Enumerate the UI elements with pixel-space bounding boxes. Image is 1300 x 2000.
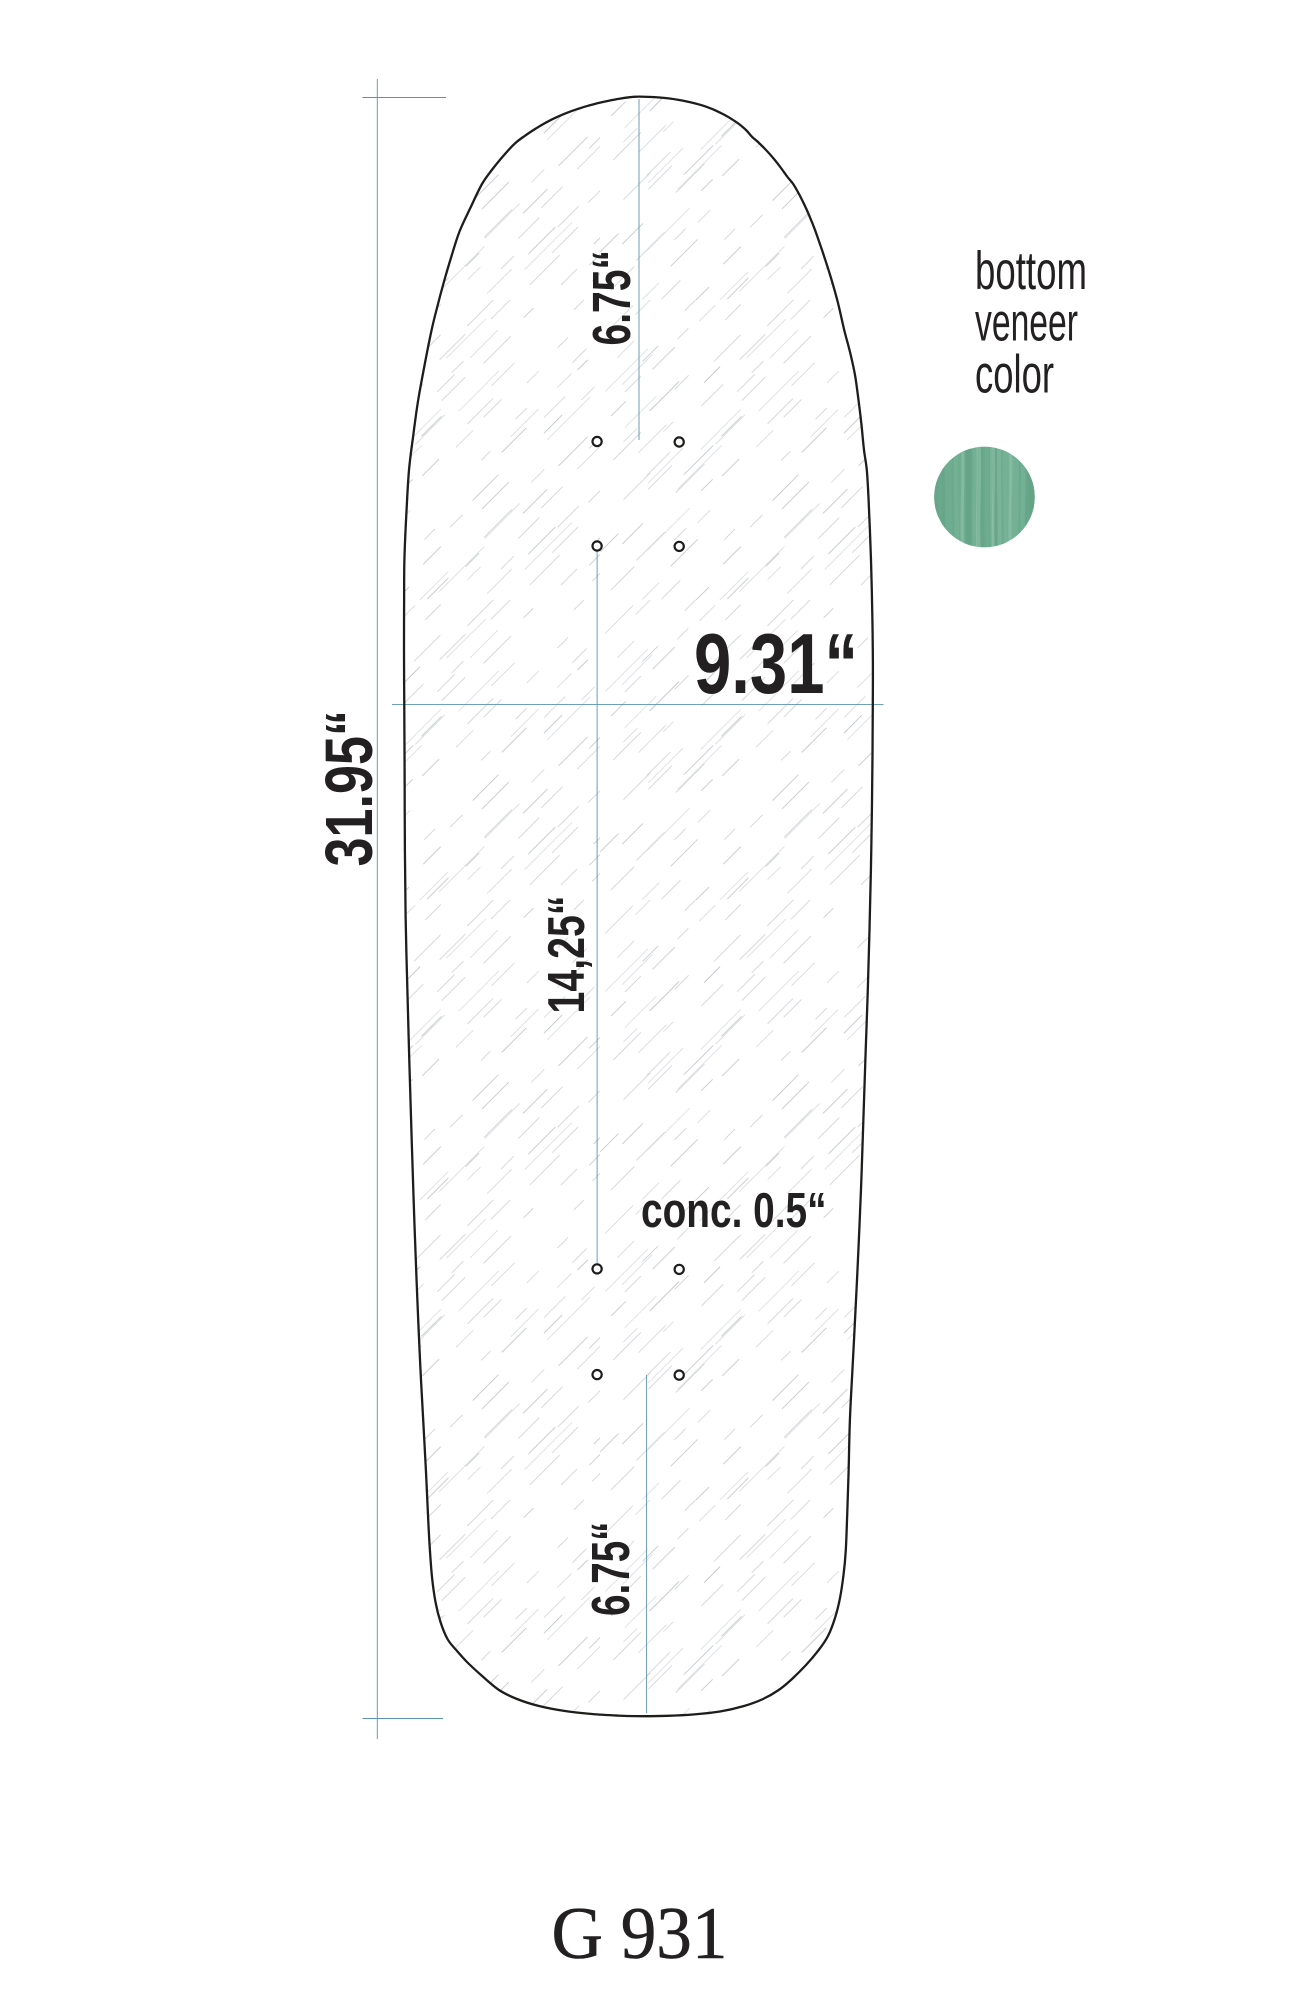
svg-text:9.31“: 9.31“	[694, 617, 858, 712]
svg-text:6.75“: 6.75“	[581, 1522, 641, 1617]
svg-text:G 931: G 931	[552, 1893, 728, 1975]
svg-text:31.95“: 31.95“	[312, 710, 387, 867]
svg-text:color: color	[975, 344, 1054, 404]
svg-text:conc. 0.5“: conc. 0.5“	[641, 1183, 827, 1238]
svg-text:6.75“: 6.75“	[582, 250, 642, 346]
svg-text:14,25“: 14,25“	[538, 896, 596, 1014]
